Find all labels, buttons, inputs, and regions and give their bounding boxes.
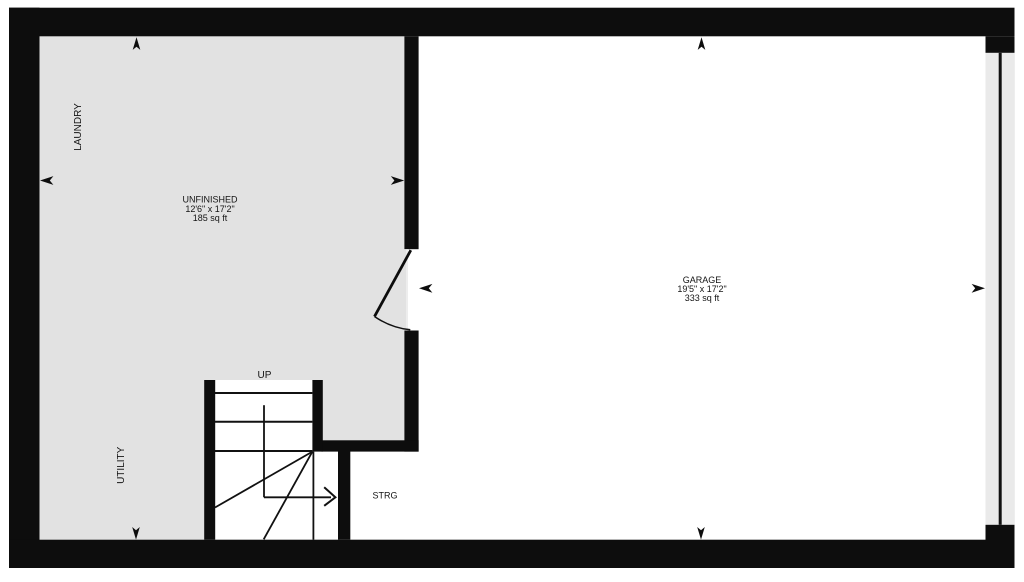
svg-text:333 sq ft: 333 sq ft [685, 293, 720, 303]
svg-text:STRG: STRG [372, 491, 397, 501]
svg-text:UP: UP [258, 370, 272, 381]
svg-text:UTILITY: UTILITY [116, 446, 127, 484]
svg-text:LAUNDRY: LAUNDRY [73, 103, 84, 151]
svg-text:185 sq ft: 185 sq ft [193, 213, 228, 223]
